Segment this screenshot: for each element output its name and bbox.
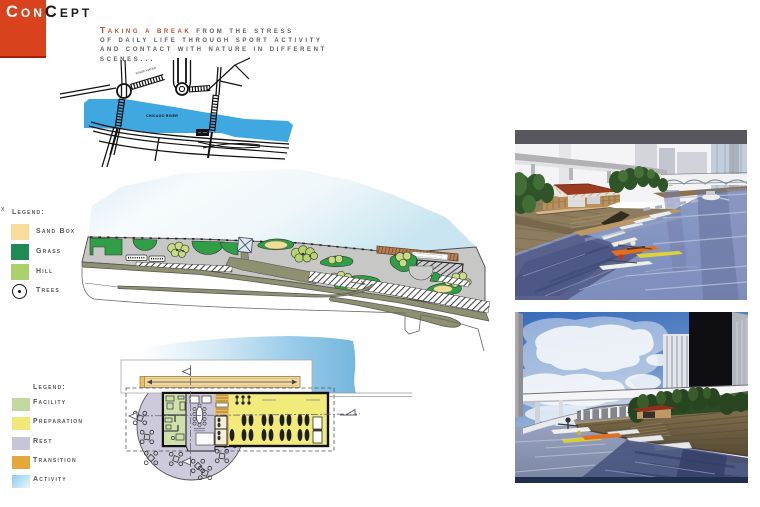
- svg-text:CHICAGO RIVER: CHICAGO RIVER: [146, 114, 178, 118]
- svg-text:KINZIE WATER: KINZIE WATER: [135, 66, 157, 76]
